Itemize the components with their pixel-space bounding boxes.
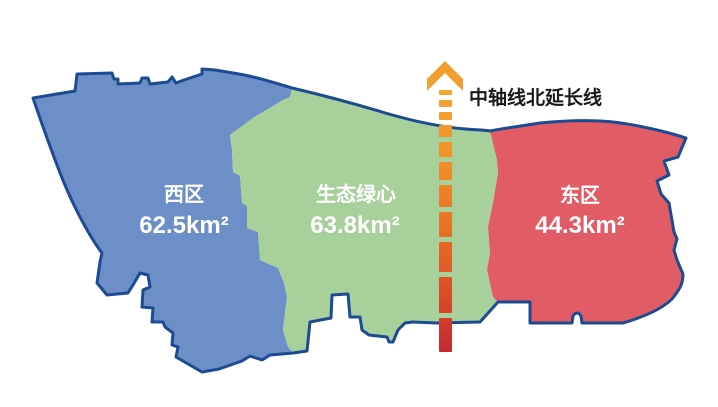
- infographic-map: 中轴线北延长线 西区 62.5km² 生态绿心 63.8km² 东区 44.3k…: [0, 0, 718, 407]
- axis-dash: [439, 212, 452, 237]
- green-heart-name: 生态绿心: [316, 182, 396, 206]
- axis-dash: [439, 318, 452, 352]
- axis-dash: [439, 100, 452, 107]
- axis-dash: [439, 185, 452, 207]
- west-district-name: 西区: [164, 184, 204, 206]
- axis-dash: [439, 90, 452, 95]
- up-arrow-icon: [427, 61, 463, 91]
- map-canvas: 中轴线北延长线 西区 62.5km² 生态绿心 63.8km² 东区 44.3k…: [0, 0, 718, 407]
- west-district-area: 62.5km²: [139, 212, 228, 239]
- axis-dash: [439, 112, 452, 120]
- axis-dash: [439, 125, 452, 137]
- green-heart-area: 63.8km²: [310, 212, 399, 239]
- axis-dash: [439, 142, 452, 157]
- axis-dash: [439, 162, 452, 180]
- axis-label: 中轴线北延长线: [469, 86, 602, 109]
- east-district-area: 44.3km²: [535, 212, 624, 239]
- east-district-name: 东区: [560, 183, 600, 207]
- axis-dash: [439, 277, 452, 313]
- axis-dash: [439, 242, 452, 272]
- axis-dashed-line: [439, 90, 452, 352]
